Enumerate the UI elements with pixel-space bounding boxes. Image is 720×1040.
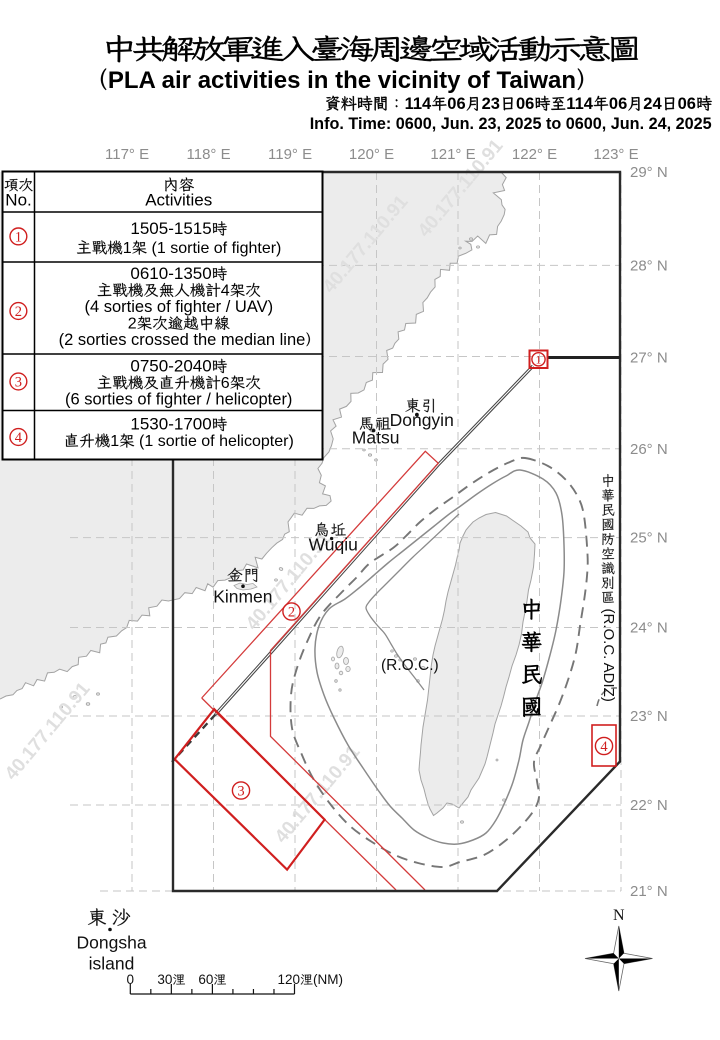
- svg-text:4: 4: [221, 283, 230, 300]
- svg-text:25° N: 25° N: [630, 530, 668, 547]
- svg-text:27° N: 27° N: [630, 350, 668, 367]
- svg-text:1530-1700: 1530-1700: [130, 415, 211, 434]
- svg-text:06: 06: [609, 95, 627, 113]
- svg-text:21° N: 21° N: [630, 883, 668, 900]
- svg-text:121° E: 121° E: [430, 146, 475, 163]
- svg-text:0610-1350: 0610-1350: [130, 264, 211, 283]
- svg-text:island: island: [89, 954, 135, 974]
- svg-text:6: 6: [221, 375, 230, 392]
- svg-text:Wuqiu: Wuqiu: [309, 535, 358, 555]
- svg-text:Info. Time: 0600, Jun. 23, 202: Info. Time: 0600, Jun. 23, 2025 to 0600,…: [310, 115, 712, 133]
- svg-text:1: 1: [110, 433, 119, 450]
- svg-text:4: 4: [15, 430, 23, 446]
- svg-text:60: 60: [198, 972, 213, 987]
- svg-text:2: 2: [288, 605, 295, 621]
- svg-text:06: 06: [447, 95, 465, 113]
- svg-text:114: 114: [405, 95, 432, 113]
- svg-text:24° N: 24° N: [630, 620, 668, 637]
- svg-text:3: 3: [237, 784, 244, 800]
- svg-text:122° E: 122° E: [512, 146, 557, 163]
- svg-text:22° N: 22° N: [630, 797, 668, 814]
- svg-text:(R.O.C. ADIZ): (R.O.C. ADIZ): [600, 609, 617, 702]
- svg-text:(NM): (NM): [313, 972, 343, 987]
- svg-text:Activities: Activities: [145, 191, 212, 210]
- svg-text:1: 1: [123, 240, 132, 257]
- svg-text:28° N: 28° N: [630, 257, 668, 274]
- svg-text:118° E: 118° E: [187, 146, 231, 163]
- svg-text:(1 sortie of fighter): (1 sortie of fighter): [147, 240, 281, 257]
- svg-text:No.: No.: [5, 191, 31, 210]
- svg-text:24: 24: [643, 95, 662, 113]
- svg-text:Matsu: Matsu: [352, 428, 400, 448]
- svg-text:30: 30: [157, 972, 172, 987]
- svg-text:119° E: 119° E: [268, 146, 312, 163]
- svg-text:1: 1: [536, 353, 542, 367]
- svg-text:4: 4: [600, 739, 608, 755]
- svg-text:Kinmen: Kinmen: [213, 587, 272, 607]
- svg-text:23: 23: [482, 95, 500, 113]
- svg-text:PLA air activities in the vici: PLA air activities in the vicinity of Ta…: [108, 67, 576, 94]
- svg-text:120: 120: [278, 972, 301, 987]
- svg-text:29° N: 29° N: [630, 164, 668, 181]
- svg-text:1505-1515: 1505-1515: [130, 219, 211, 238]
- svg-text:0: 0: [127, 972, 135, 987]
- svg-text:(4 sorties of fighter / UAV): (4 sorties of fighter / UAV): [85, 298, 274, 316]
- svg-text:(R.O.C.): (R.O.C.): [381, 657, 439, 674]
- svg-text:2: 2: [15, 304, 22, 320]
- svg-text:06: 06: [516, 95, 534, 113]
- svg-text:114: 114: [566, 95, 593, 113]
- svg-text:N: N: [613, 907, 625, 924]
- svg-text:120° E: 120° E: [349, 146, 394, 163]
- svg-text:(2 sorties crossed the median: (2 sorties crossed the median line: [59, 331, 306, 349]
- svg-text:06: 06: [678, 95, 696, 113]
- svg-text:(1 sortie of helicopter): (1 sortie of helicopter): [135, 433, 294, 450]
- svg-text:123° E: 123° E: [593, 146, 638, 163]
- svg-text:0750-2040: 0750-2040: [130, 357, 211, 376]
- svg-text:117° E: 117° E: [105, 146, 149, 163]
- svg-text:23° N: 23° N: [630, 708, 668, 725]
- svg-text:Dongsha: Dongsha: [77, 933, 147, 953]
- svg-text:3: 3: [15, 375, 22, 391]
- svg-text:(6 sorties of fighter / helico: (6 sorties of fighter / helicopter): [65, 391, 292, 409]
- svg-text:1: 1: [15, 229, 22, 245]
- svg-text:26° N: 26° N: [630, 441, 668, 458]
- svg-text:2: 2: [128, 316, 137, 333]
